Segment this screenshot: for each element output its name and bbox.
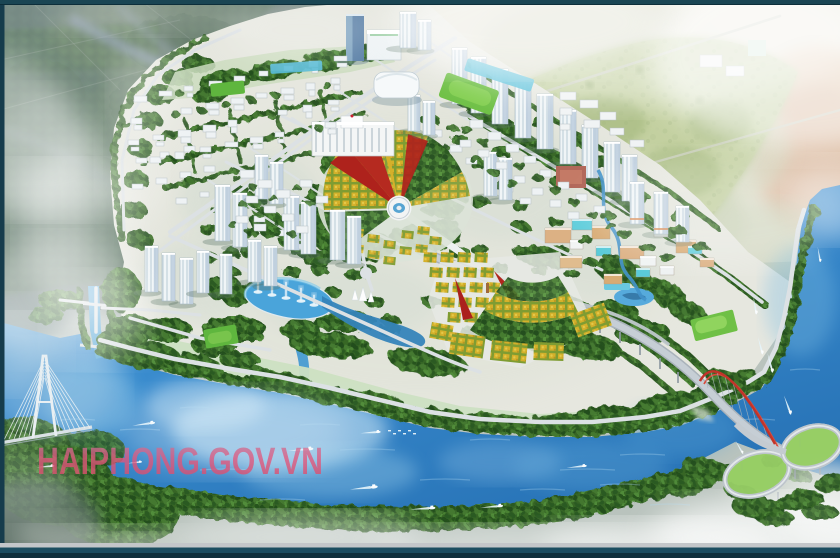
svg-text:HAIPHONG.GOV.VN: HAIPHONG.GOV.VN [37, 441, 323, 483]
